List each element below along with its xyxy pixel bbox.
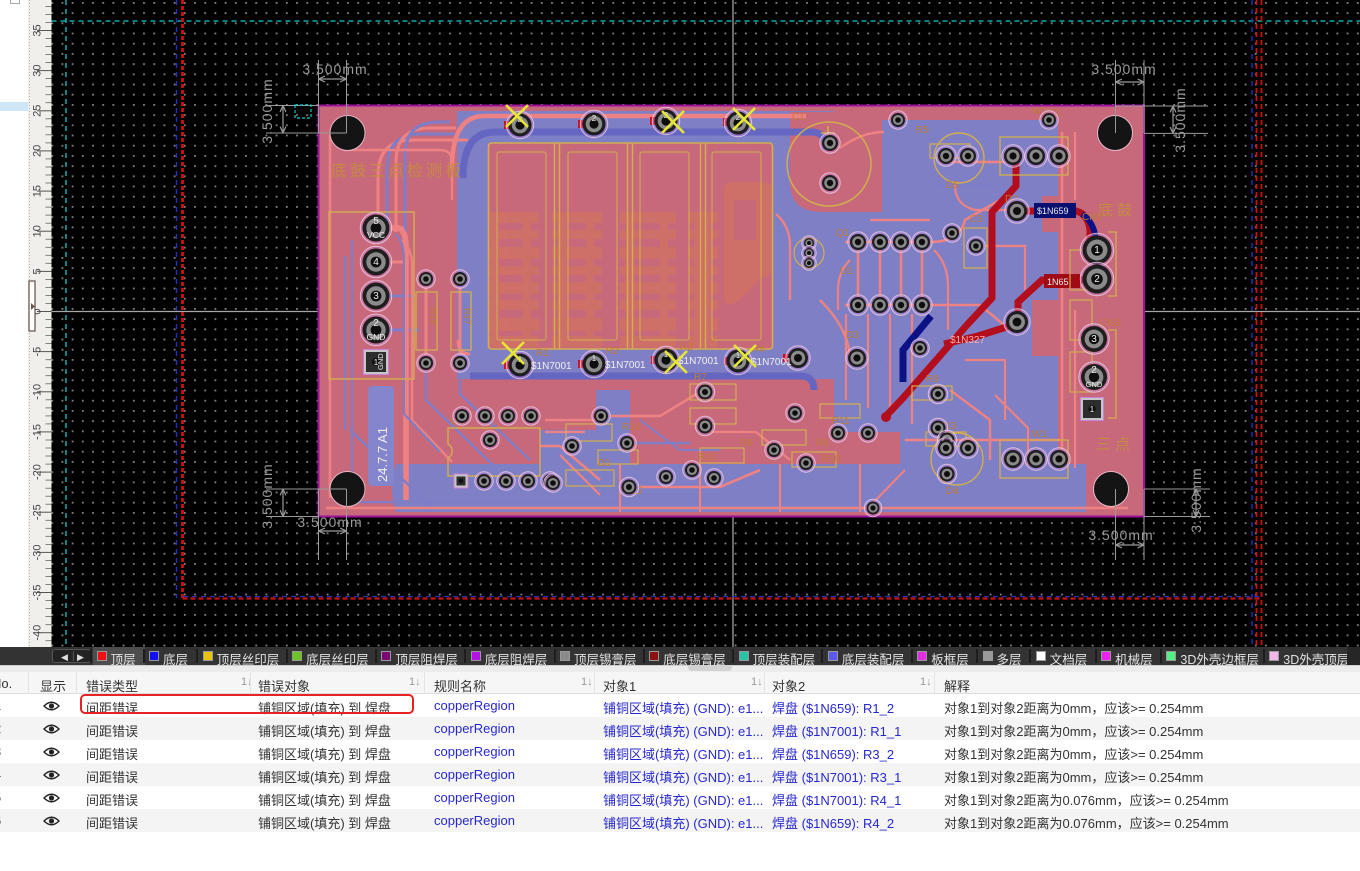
svg-text:CN2: CN2 bbox=[1082, 212, 1102, 223]
svg-text:R12: R12 bbox=[698, 452, 717, 463]
svg-text:R10: R10 bbox=[822, 454, 841, 465]
svg-text:$1N7001: $1N7001 bbox=[751, 357, 792, 368]
svg-text:$1N7001: $1N7001 bbox=[605, 360, 646, 371]
svg-text:3: 3 bbox=[1091, 334, 1097, 345]
svg-text:1: 1 bbox=[1090, 405, 1095, 414]
svg-text:10: 10 bbox=[32, 225, 44, 237]
svg-text:30: 30 bbox=[32, 64, 44, 76]
svg-text:C1: C1 bbox=[792, 112, 805, 123]
svg-text:3: 3 bbox=[373, 291, 379, 302]
svg-text:25: 25 bbox=[32, 105, 44, 117]
svg-text:3.500mm: 3.500mm bbox=[259, 463, 275, 528]
svg-text:GND: GND bbox=[376, 353, 385, 370]
svg-text:VCC: VCC bbox=[367, 230, 385, 240]
svg-text:Q1: Q1 bbox=[836, 228, 850, 239]
svg-text:R17: R17 bbox=[462, 308, 472, 325]
svg-text:三点: 三点 bbox=[1096, 436, 1134, 453]
svg-text:$1N7001: $1N7001 bbox=[678, 356, 719, 367]
svg-text:R18: R18 bbox=[428, 308, 438, 325]
svg-text:GND: GND bbox=[1086, 380, 1103, 389]
svg-text:3.500mm: 3.500mm bbox=[1091, 61, 1156, 77]
svg-text:底鼓三点检测板: 底鼓三点检测板 bbox=[331, 162, 464, 180]
svg-text:底鼓: 底鼓 bbox=[1098, 202, 1136, 219]
svg-text:R1: R1 bbox=[536, 348, 549, 359]
svg-text:5: 5 bbox=[373, 216, 379, 227]
svg-text:W1: W1 bbox=[1032, 429, 1047, 440]
svg-text:$1N7001: $1N7001 bbox=[531, 361, 572, 372]
svg-text:-30: -30 bbox=[32, 544, 44, 560]
svg-text:D1: D1 bbox=[598, 458, 611, 469]
svg-text:20: 20 bbox=[32, 145, 44, 157]
svg-text:-40: -40 bbox=[32, 625, 44, 641]
svg-text:3.500mm: 3.500mm bbox=[259, 78, 275, 143]
svg-text:35: 35 bbox=[32, 24, 44, 36]
svg-text:5: 5 bbox=[32, 268, 44, 274]
svg-text:R7: R7 bbox=[694, 372, 707, 383]
svg-text:24.7.7 A1: 24.7.7 A1 bbox=[375, 427, 390, 482]
svg-text:-25: -25 bbox=[32, 504, 44, 520]
svg-text:3.500mm: 3.500mm bbox=[1088, 527, 1153, 543]
svg-text:1: 1 bbox=[1094, 245, 1100, 256]
svg-text:R5: R5 bbox=[916, 125, 929, 136]
svg-text:GND: GND bbox=[367, 332, 386, 342]
svg-text:-35: -35 bbox=[32, 585, 44, 601]
svg-text:-10: -10 bbox=[32, 384, 44, 400]
svg-text:-20: -20 bbox=[32, 464, 44, 480]
svg-text:R8: R8 bbox=[740, 438, 753, 449]
svg-text:3.500mm: 3.500mm bbox=[1188, 467, 1204, 532]
svg-text:3.500mm: 3.500mm bbox=[297, 514, 362, 530]
svg-text:2: 2 bbox=[1091, 365, 1097, 376]
svg-text:4: 4 bbox=[373, 257, 379, 268]
svg-text:D3: D3 bbox=[846, 330, 859, 341]
svg-text:C3: C3 bbox=[970, 214, 983, 225]
svg-text:R6: R6 bbox=[816, 438, 829, 449]
svg-text:-5: -5 bbox=[32, 347, 44, 357]
svg-text:U1: U1 bbox=[840, 266, 853, 277]
svg-text:2: 2 bbox=[373, 318, 379, 329]
svg-text:1: 1 bbox=[592, 354, 597, 363]
svg-text:R14: R14 bbox=[622, 422, 641, 433]
svg-text:2: 2 bbox=[1094, 274, 1100, 285]
svg-text:2: 2 bbox=[592, 114, 597, 123]
svg-text:R9: R9 bbox=[926, 374, 939, 385]
svg-text:$1N659: $1N659 bbox=[1037, 206, 1069, 216]
svg-text:R2: R2 bbox=[606, 346, 619, 357]
svg-text:15: 15 bbox=[32, 185, 44, 197]
svg-text:D5: D5 bbox=[946, 180, 959, 191]
svg-text:1N65: 1N65 bbox=[1047, 277, 1069, 287]
svg-text:$1N327: $1N327 bbox=[950, 335, 985, 346]
svg-text:D4: D4 bbox=[946, 486, 959, 497]
svg-text:-15: -15 bbox=[32, 424, 44, 440]
svg-text:3.500mm: 3.500mm bbox=[1172, 87, 1188, 152]
svg-text:3.500mm: 3.500mm bbox=[302, 61, 367, 77]
